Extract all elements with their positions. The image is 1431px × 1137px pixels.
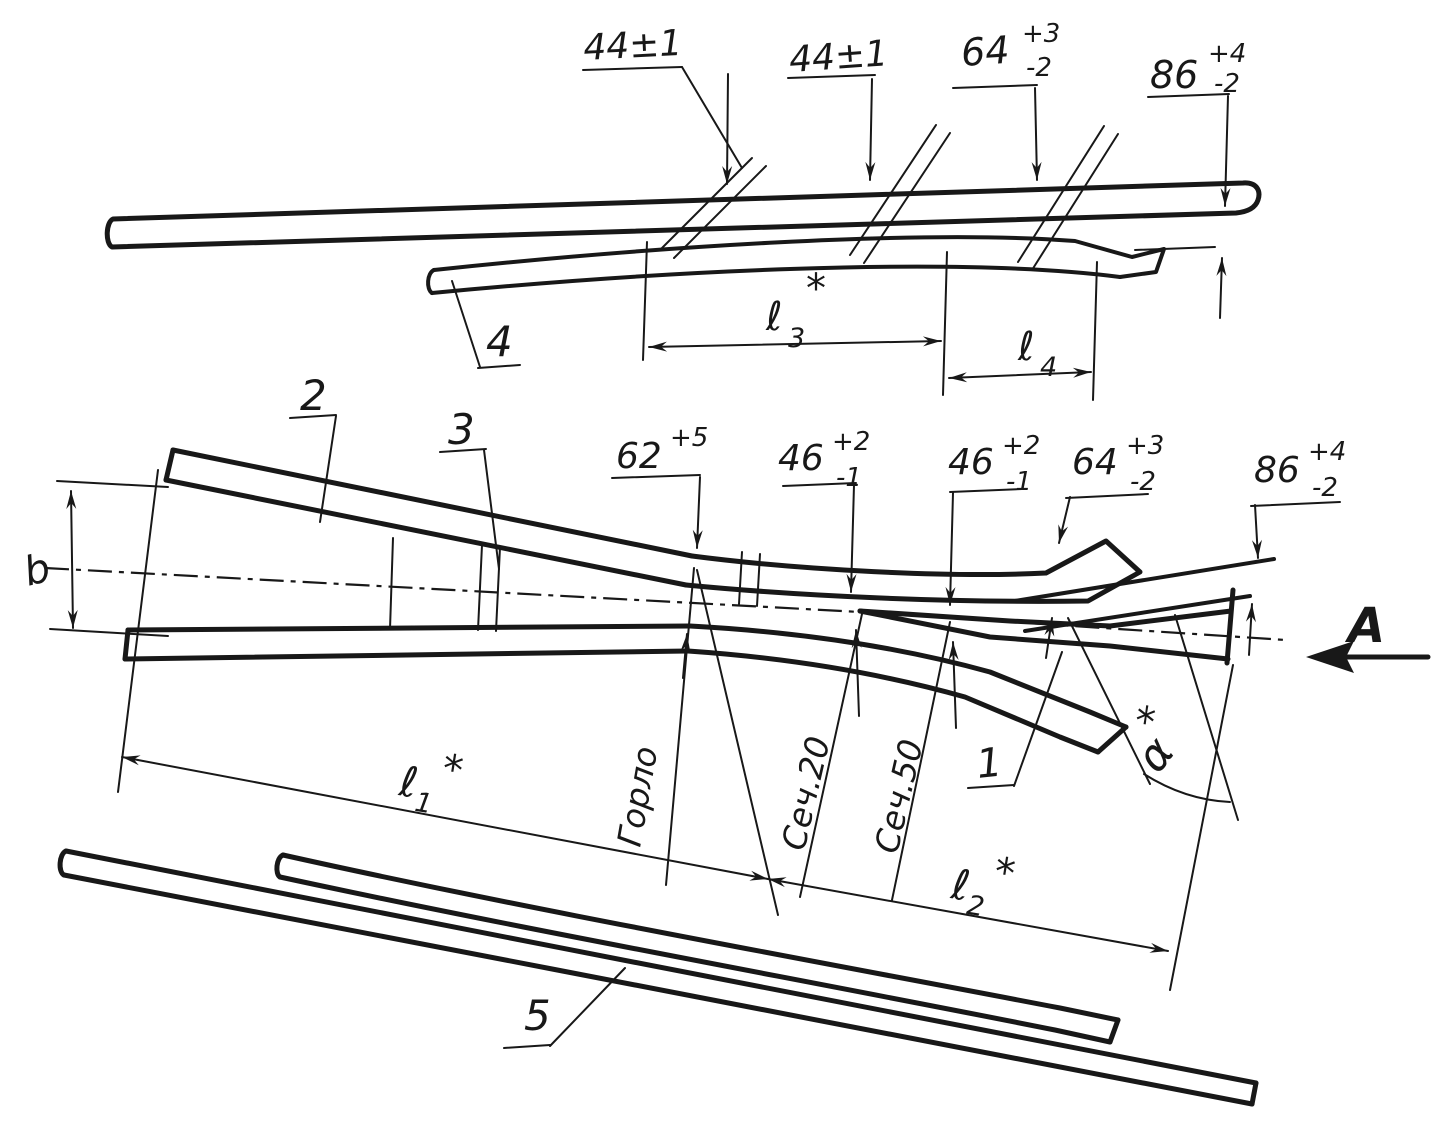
upper-left-rail-bottom (166, 480, 686, 585)
section-20-label: Сеч.20 (774, 733, 838, 854)
leader-part3 (484, 450, 499, 569)
part-1-label: 1 (974, 740, 1004, 788)
bottom-rail-b-bottom (280, 877, 1110, 1042)
arrow-46b-down (950, 493, 953, 605)
dim-86-mid-minus: -2 (1312, 473, 1338, 503)
main-view-group: 62 +5 46 +2 -1 46 +2 -1 64 +3 -2 86 +4 -… (19, 371, 1428, 990)
bottom-rail-b-right-cap (1110, 1020, 1118, 1042)
dim-62-plus: +5 (670, 423, 708, 453)
section-50-label: Сеч.50 (867, 736, 931, 857)
leader-part5-underline (504, 1045, 550, 1048)
ext-line-heel (1170, 665, 1233, 990)
arrow-86-mid-up (1249, 604, 1252, 655)
dim-l2-star: * (991, 849, 1018, 898)
arrow-64-top (1035, 88, 1037, 180)
part-3-label: 3 (448, 405, 475, 454)
part-2-label: 2 (300, 371, 327, 420)
guard-rail-left-cap (428, 270, 434, 293)
straight-rail-outline (107, 183, 1259, 247)
dim-l3-base: ℓ (765, 294, 783, 340)
bottom-rail-b-left-cap (277, 855, 283, 877)
part-5-label: 5 (524, 991, 551, 1040)
dim-l4-sub: 4 (1040, 352, 1057, 383)
ext-line-l3-left (643, 242, 647, 360)
dim-86-top-value: 86 (1150, 53, 1198, 97)
dim-b-label: b (19, 545, 55, 596)
arrow-46b-up (953, 642, 956, 728)
dim-64-mid-plus: +3 (1126, 431, 1164, 461)
arrow-64-mid-down (1059, 497, 1070, 543)
alpha-angle-arc (1144, 774, 1230, 802)
b-tick-top (57, 481, 168, 487)
leader-44a-slant (682, 67, 742, 168)
arrow-44b (870, 79, 872, 180)
arrow-86-mid-down (1255, 505, 1258, 558)
arrow-62-down (697, 477, 700, 548)
view-a-label: A (1344, 598, 1385, 654)
dim-46b-value: 46 (948, 442, 994, 483)
joint-mark-2a (478, 545, 482, 630)
arrow-86-top-up (1220, 258, 1222, 318)
dim-62-value: 62 (616, 436, 662, 477)
dim-line-l4 (949, 372, 1091, 378)
dim-64-mid-value: 64 (1072, 442, 1118, 483)
dim-64-mid-minus: -2 (1130, 467, 1156, 497)
dim-l3-sub: 3 (788, 323, 805, 354)
dim-l3-star: * (806, 266, 826, 312)
arrow-86-top-down (1225, 96, 1228, 206)
tick-86-top (1135, 247, 1215, 250)
upper-left-rail-top (173, 450, 692, 556)
top-view-group: 44±1 44±1 64 +3 -2 86 +4 -2 ℓ 3 * ℓ 4 4 (107, 19, 1259, 400)
bottom-rail-a-left-cap (60, 851, 66, 875)
ext-line-throat-junction (697, 570, 778, 915)
dim-64-top-plus: +3 (1022, 19, 1060, 49)
upper-left-rail-cap (166, 450, 173, 480)
ext-line-l3-l4 (943, 252, 947, 395)
arrow-46a-down (851, 485, 854, 592)
dim-line-b (71, 491, 73, 628)
technical-drawing-page: 44±1 44±1 64 +3 -2 86 +4 -2 ℓ 3 * ℓ 4 4 (0, 0, 1431, 1137)
section-throat-label: Горло (609, 743, 665, 849)
dim-46a-minus: -1 (836, 463, 862, 493)
bottom-rail-a-right-cap (1252, 1083, 1256, 1104)
dim-64-top-value: 64 (960, 28, 1011, 75)
dim-46a-value: 46 (778, 438, 824, 479)
bottom-rail-a-bottom (64, 875, 1252, 1104)
heel-rail-top-line (1015, 559, 1274, 601)
dim-86-top-minus: -2 (1214, 69, 1240, 99)
dim-86-top-plus: +4 (1208, 39, 1246, 69)
leader-part4 (452, 281, 480, 367)
bottom-rail-a-top (66, 851, 1256, 1083)
dim-46a-plus: +2 (832, 427, 870, 457)
alpha-label-group: α * (1109, 697, 1197, 781)
dim-64-top-minus: -2 (1026, 53, 1052, 83)
lower-wing-rail-cap (1098, 727, 1126, 752)
dim-86-mid-plus: +4 (1308, 437, 1346, 467)
bottom-view-group: 5 (60, 851, 1256, 1104)
guard-rail-bottom-line (432, 267, 1120, 293)
leader-part5 (550, 968, 625, 1046)
dim-l2-label-group: ℓ 2 * (946, 843, 1018, 928)
dim-86-mid-value: 86 (1254, 450, 1300, 491)
lower-left-rail-bottom (125, 651, 688, 659)
gap-mark-2b (864, 133, 950, 263)
dim-44-second-label: 44±1 (788, 33, 890, 81)
frog-crossing-drawing: 44±1 44±1 64 +3 -2 86 +4 -2 ℓ 3 * ℓ 4 4 (0, 0, 1431, 1137)
dim-l4-base: ℓ (1017, 324, 1035, 370)
gap-mark-1a (660, 158, 752, 250)
section-line-throat (666, 568, 694, 885)
leader-64-top-underline (953, 85, 1037, 88)
lower-left-rail-top (128, 626, 690, 630)
dim-l1-label-group: ℓ 1 * (394, 740, 466, 825)
leader-part2 (320, 416, 336, 522)
dim-46b-minus: -1 (1006, 467, 1032, 497)
arrow-44a (727, 74, 728, 184)
dim-l1-star: * (439, 746, 466, 795)
dim-44-first-label: 44±1 (582, 23, 683, 69)
dim-46b-plus: +2 (1002, 431, 1040, 461)
ext-line-l4-right (1093, 262, 1097, 400)
part-4-label: 4 (486, 317, 513, 366)
joint-mark-1 (390, 538, 393, 629)
